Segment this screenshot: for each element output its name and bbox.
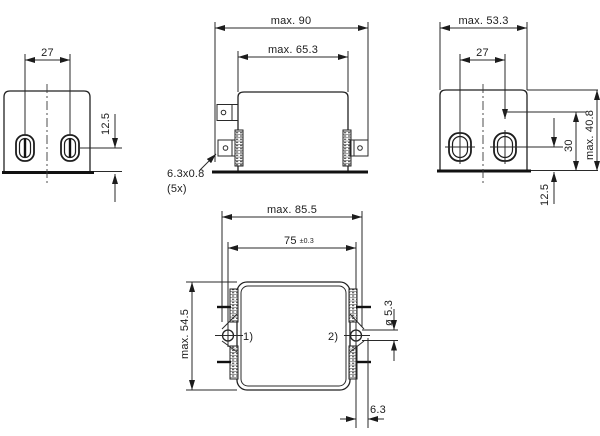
view-side-left: 27 12.5 bbox=[2, 47, 122, 202]
dim-label-mount-spacing: 75±0.3 bbox=[284, 235, 314, 247]
dim-label-edge-offset: 6.3 bbox=[370, 404, 386, 416]
mount-ear-left bbox=[215, 314, 243, 352]
dim-label-hole-height: 12.5 bbox=[539, 184, 551, 206]
mount-slot-left bbox=[445, 130, 475, 164]
dim-overall-width: max. 85.5 bbox=[222, 204, 362, 327]
terminal-ref-1: 1) bbox=[243, 331, 253, 343]
dim-label-overall-width: max. 53.3 bbox=[458, 15, 508, 27]
dim-label-hole-spacing: 27 bbox=[41, 47, 54, 59]
dim-edge-offset: 6.3 bbox=[340, 338, 386, 428]
drawing-canvas: 27 12.5 max. 90 max. 65.3 bbox=[0, 0, 600, 436]
dim-label-overall-width: max. 90 bbox=[271, 15, 312, 27]
mount-bracket-left bbox=[235, 130, 243, 166]
terminal-upper-left bbox=[217, 105, 238, 121]
dim-label-hole-height: 12.5 bbox=[100, 113, 112, 135]
view-side-right: max. 53.3 27 12.5 bbox=[437, 15, 598, 206]
mount-slot-right bbox=[490, 130, 520, 164]
terminal-count-label: (5x) bbox=[167, 183, 187, 195]
view-front: max. 90 max. 65.3 6.3x0. bbox=[167, 15, 368, 195]
terminal-size-note: 6.3x0.8 (5x) bbox=[167, 154, 216, 195]
view-top: max. 85.5 75±0.3 bbox=[179, 204, 398, 428]
dim-hole-height: 12.5 bbox=[517, 118, 563, 206]
dim-label-overall-width: max. 85.5 bbox=[267, 204, 317, 216]
mount-slot-right bbox=[61, 135, 79, 161]
terminal-lower-right bbox=[350, 140, 368, 156]
dim-overall-height: max. 40.8 bbox=[584, 90, 597, 171]
dim-slot-height: 30 bbox=[563, 112, 576, 171]
dim-mount-hole-diameter: ø 5.3 bbox=[362, 300, 398, 361]
dim-label-mount-hole-diameter: ø 5.3 bbox=[383, 300, 395, 326]
dim-label-overall-height: max. 40.8 bbox=[584, 110, 596, 160]
dim-label-overall-depth: max. 54.5 bbox=[179, 309, 191, 359]
bracket-lower-left bbox=[230, 346, 238, 379]
dim-body-width: max. 65.3 bbox=[238, 44, 348, 92]
terminal-size-label: 6.3x0.8 bbox=[167, 168, 204, 180]
dim-hole-height: 12.5 bbox=[80, 113, 122, 202]
technical-drawing: 27 12.5 max. 90 max. 65.3 bbox=[0, 0, 600, 436]
terminal-ref-2: 2) bbox=[328, 331, 338, 343]
dim-label-hole-spacing: 27 bbox=[476, 47, 489, 59]
dim-label-body-width: max. 65.3 bbox=[268, 44, 318, 56]
mount-slot-left bbox=[16, 135, 34, 161]
dim-label-slot-height: 30 bbox=[563, 139, 575, 152]
case-outline bbox=[238, 92, 348, 171]
